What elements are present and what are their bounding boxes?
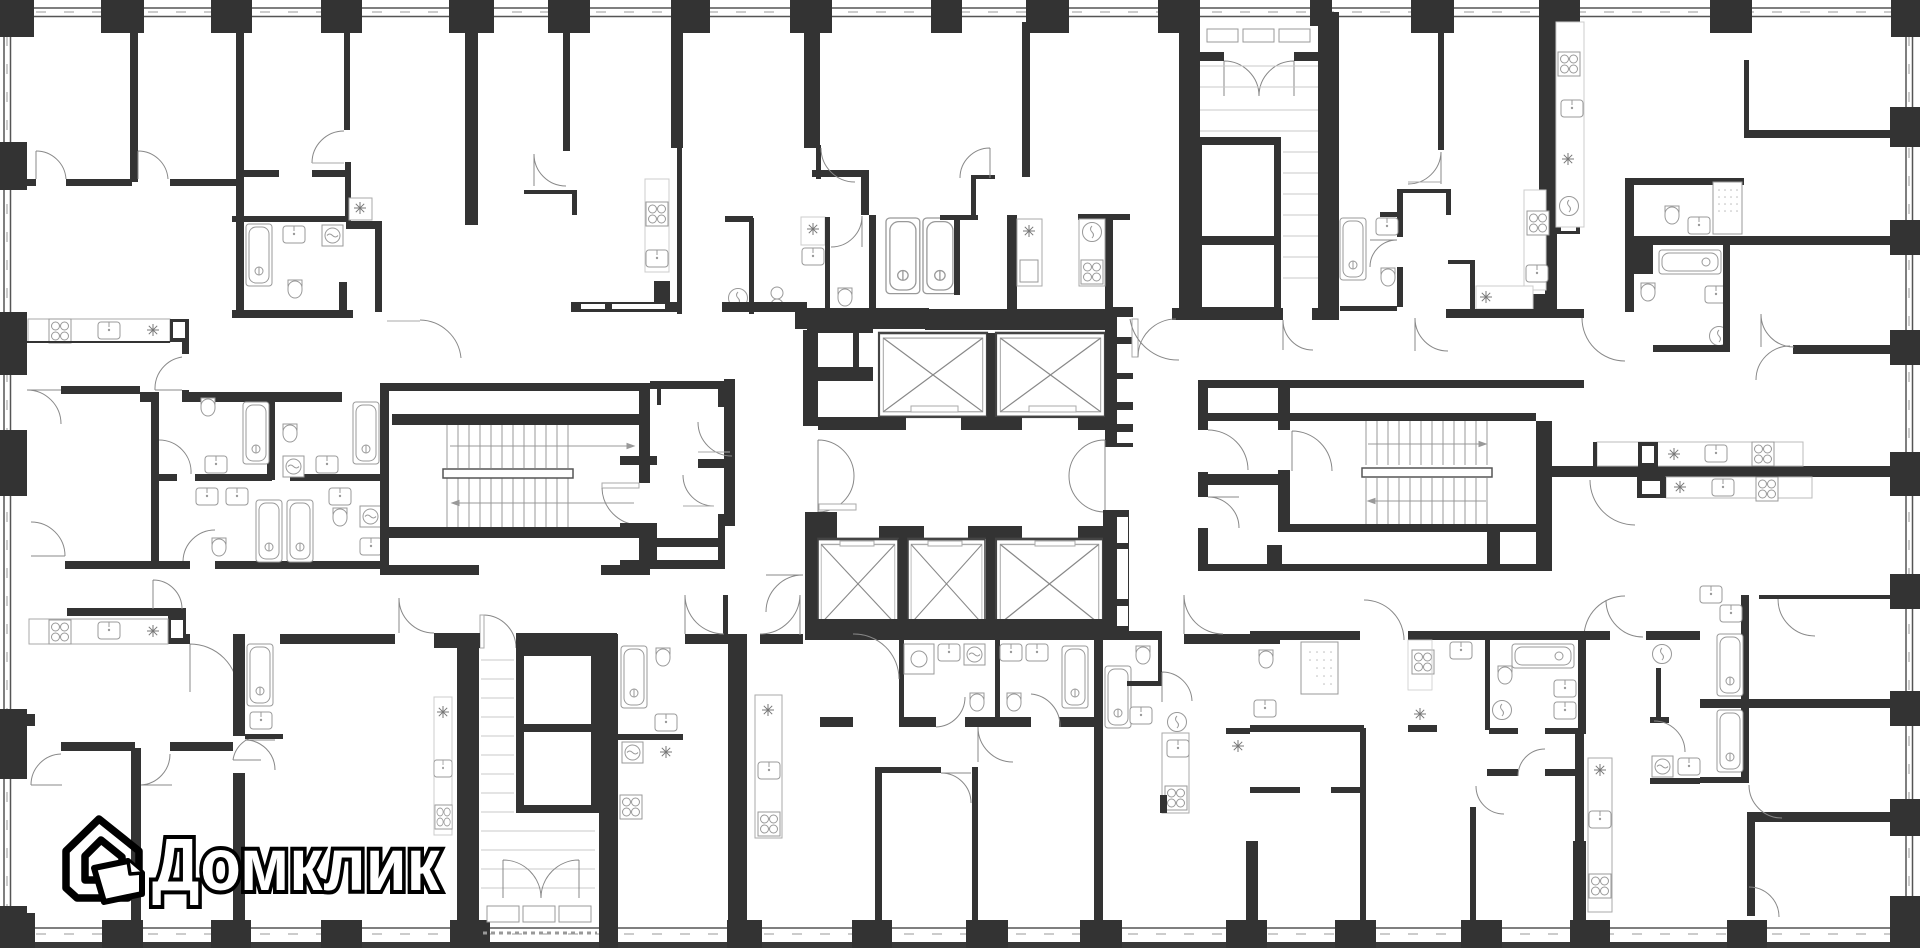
svg-text:Домклик: Домклик: [152, 823, 441, 906]
